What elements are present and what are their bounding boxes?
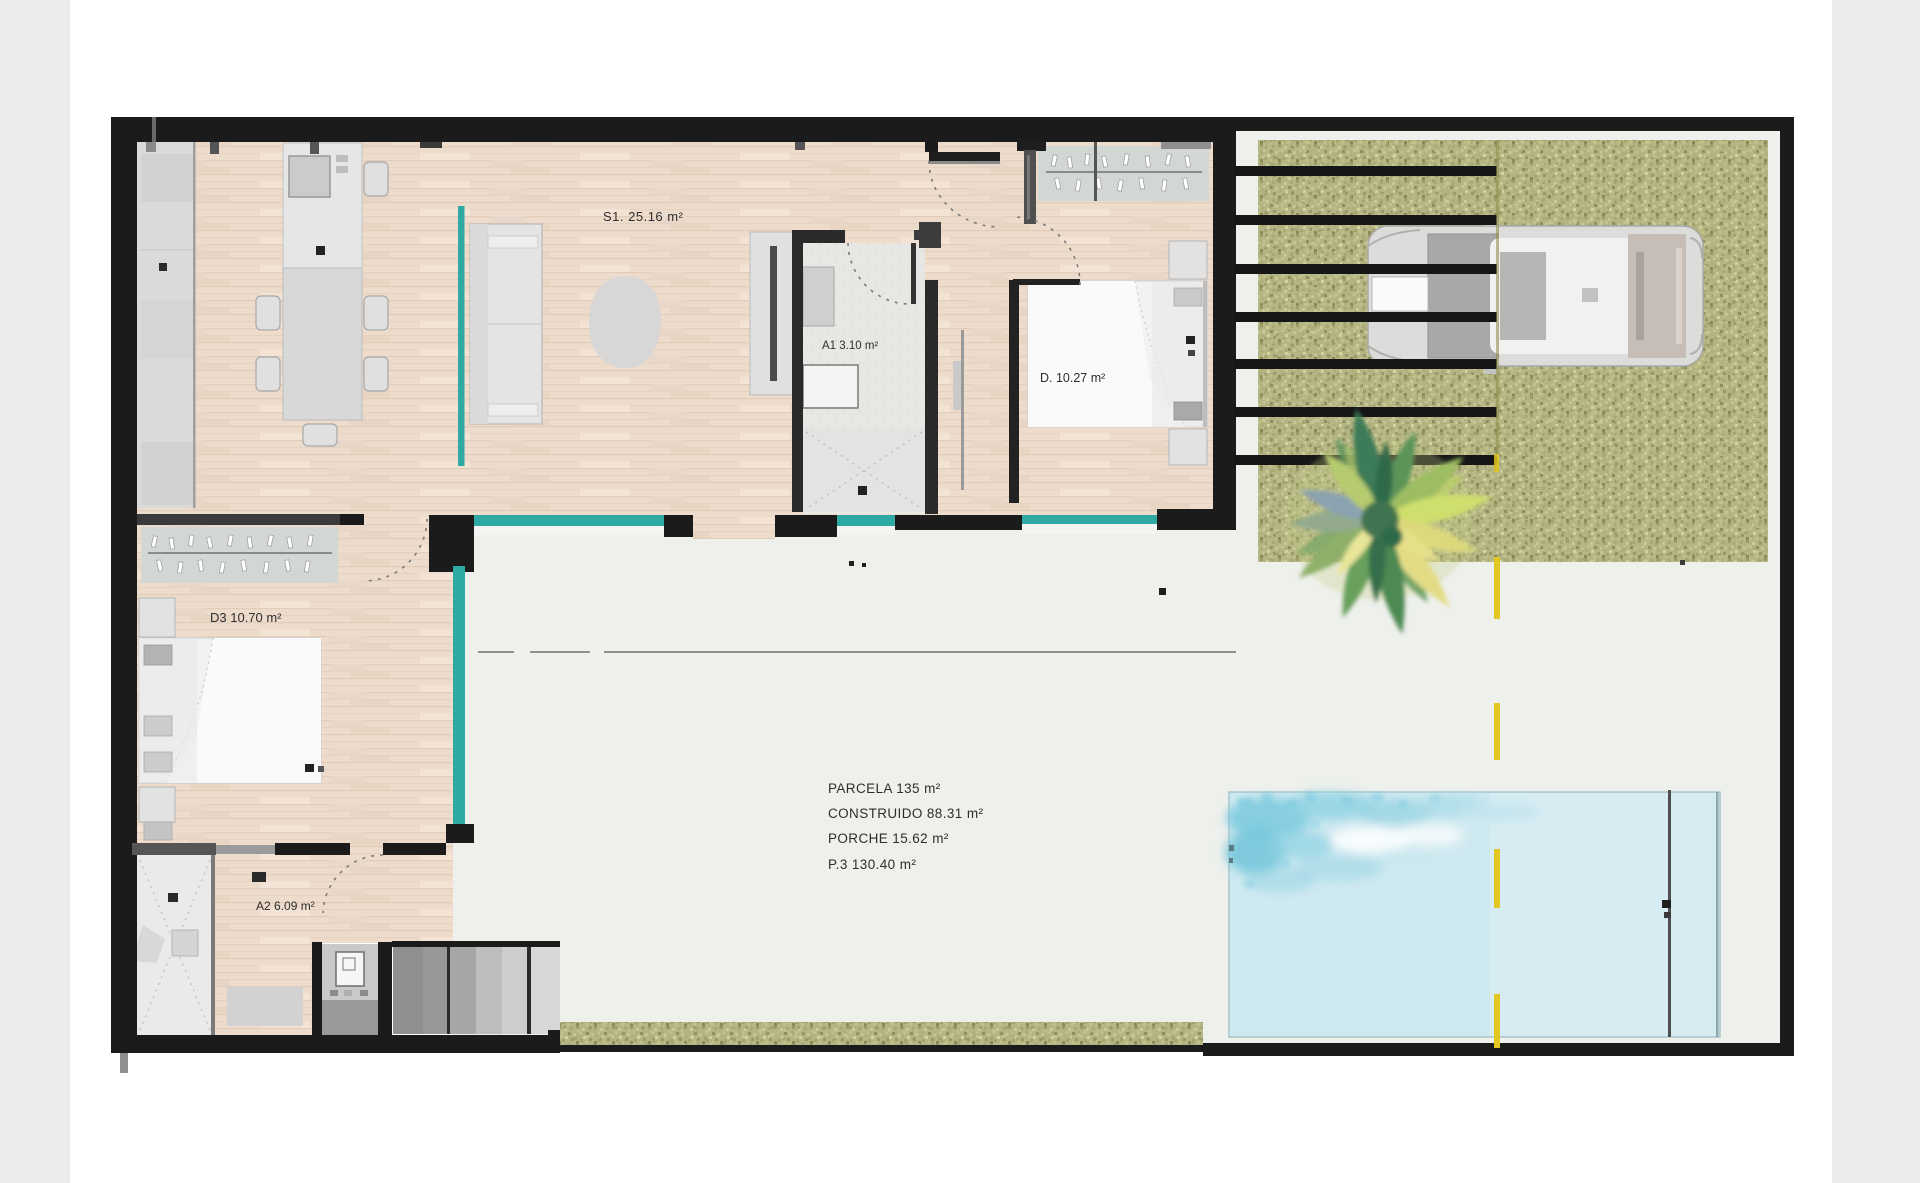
svg-text:PARCELA 135 m²: PARCELA 135 m² <box>828 781 941 796</box>
svg-text:S1. 25.16 m²: S1. 25.16 m² <box>603 209 684 224</box>
svg-text:CONSTRUIDO 88.31 m²: CONSTRUIDO 88.31 m² <box>828 806 983 821</box>
svg-text:D. 10.27 m²: D. 10.27 m² <box>1040 371 1105 385</box>
svg-text:D3 10.70 m²: D3 10.70 m² <box>210 610 282 625</box>
svg-text:A2 6.09 m²: A2 6.09 m² <box>256 899 315 913</box>
svg-text:P.3 130.40 m²: P.3 130.40 m² <box>828 857 916 872</box>
svg-text:PORCHE 15.62 m²: PORCHE 15.62 m² <box>828 831 949 846</box>
svg-text:A1 3.10 m²: A1 3.10 m² <box>822 340 878 352</box>
